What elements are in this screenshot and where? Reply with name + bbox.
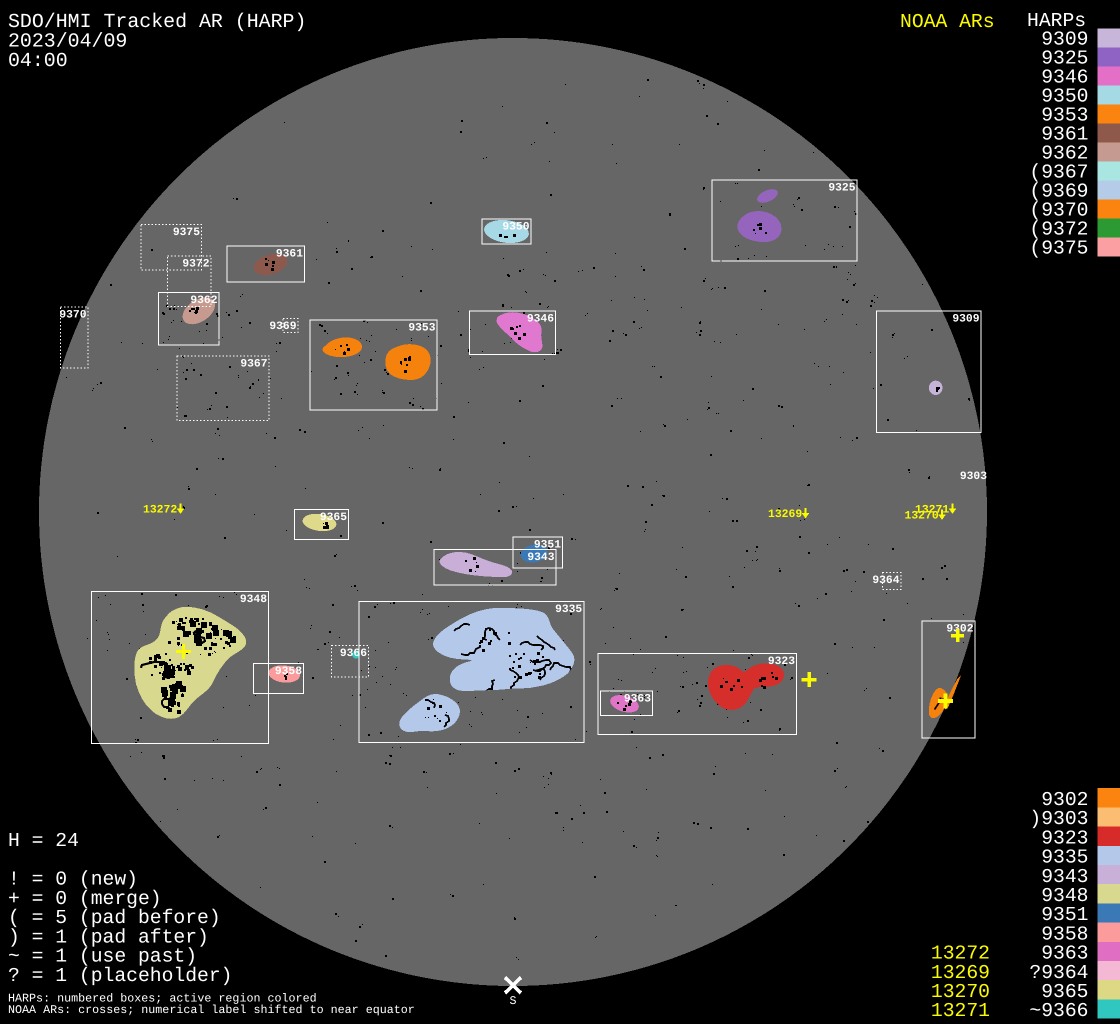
svg-text:NOAA ARs: NOAA ARs — [900, 11, 995, 33]
svg-text:9346: 9346 — [527, 314, 554, 326]
svg-text:9372: 9372 — [182, 259, 209, 271]
svg-text:13271: 13271 — [931, 1000, 990, 1022]
svg-text:9366: 9366 — [340, 648, 367, 660]
svg-text:13272: 13272 — [143, 505, 177, 517]
svg-text:9375: 9375 — [173, 227, 200, 239]
svg-text:9302: 9302 — [946, 624, 973, 636]
svg-text:9323: 9323 — [768, 656, 795, 668]
svg-text:H = 24: H = 24 — [8, 830, 79, 852]
svg-text:9365: 9365 — [320, 512, 347, 524]
svg-text:9370: 9370 — [59, 310, 86, 322]
svg-text:S: S — [509, 994, 516, 1008]
svg-text:9363: 9363 — [624, 694, 651, 706]
svg-text:9361: 9361 — [276, 249, 303, 261]
svg-text:04:00: 04:00 — [8, 49, 68, 72]
svg-text:9362: 9362 — [190, 295, 217, 307]
svg-text:NOAA ARs: crosses; numerical l: NOAA ARs: crosses; numerical label shift… — [8, 1003, 415, 1017]
svg-text:9351: 9351 — [534, 540, 561, 552]
svg-text:(9375: (9375 — [1029, 238, 1088, 260]
svg-text:9303: 9303 — [960, 471, 987, 483]
svg-text:13269: 13269 — [768, 509, 802, 521]
svg-text:9348: 9348 — [240, 594, 267, 606]
svg-text:9369: 9369 — [269, 321, 296, 333]
svg-text:9335: 9335 — [555, 604, 582, 616]
svg-text:9364: 9364 — [872, 575, 899, 587]
svg-text:9343: 9343 — [527, 552, 554, 564]
svg-text:? = 1 (placeholder): ? = 1 (placeholder) — [8, 965, 232, 987]
svg-text:9358: 9358 — [275, 666, 302, 678]
svg-text:9325: 9325 — [828, 183, 855, 195]
svg-text:13270: 13270 — [905, 511, 939, 523]
svg-text:9367: 9367 — [240, 359, 267, 371]
svg-text:9350: 9350 — [502, 222, 529, 234]
svg-text:9353: 9353 — [408, 323, 435, 335]
svg-text:9309: 9309 — [952, 314, 979, 326]
svg-text:~9366: ~9366 — [1029, 1000, 1088, 1022]
